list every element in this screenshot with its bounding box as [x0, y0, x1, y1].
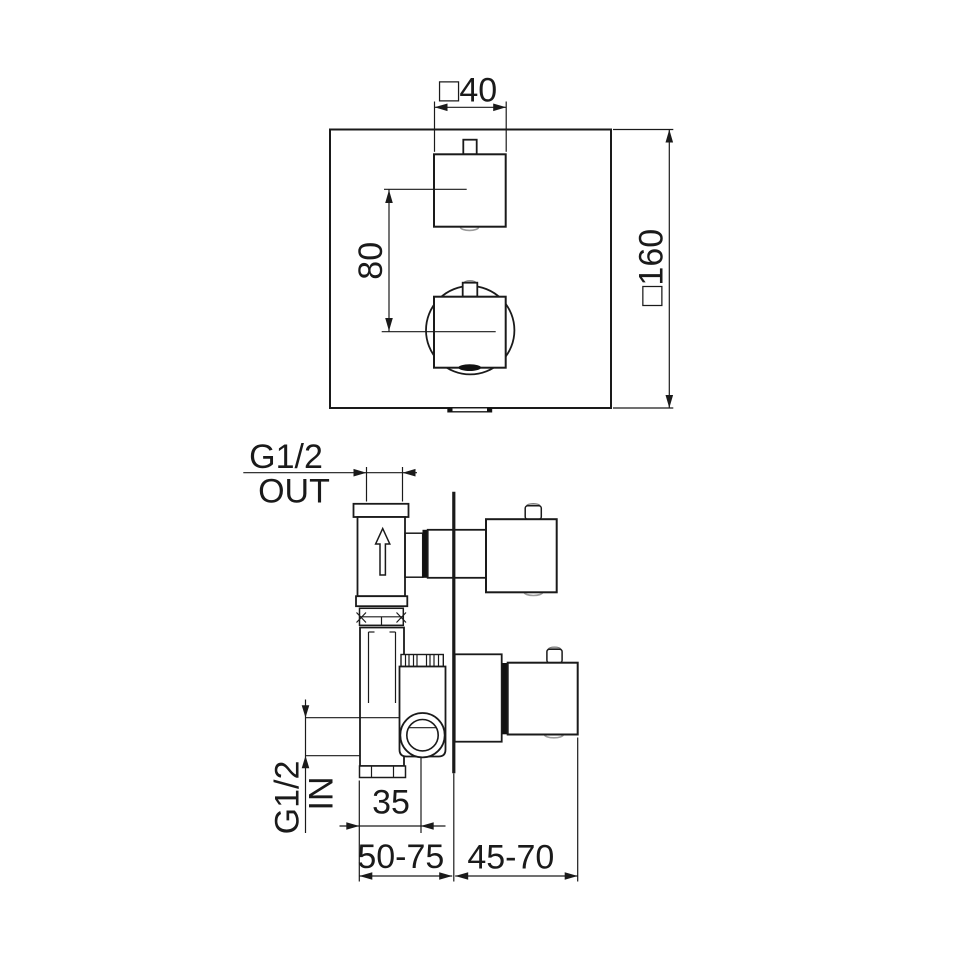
dim-80-label: 80	[352, 242, 390, 280]
lower-handle-escutcheon	[455, 654, 502, 741]
temperature-handle-tab	[463, 283, 478, 297]
side-view: G1/2 OUT	[243, 438, 577, 882]
drawing-canvas: □40 80	[0, 0, 958, 958]
lower-handle-tab	[547, 649, 562, 663]
valve-body-bottom-nut	[360, 766, 406, 778]
threaded-section	[357, 608, 407, 625]
dim-40-label: □40	[439, 72, 497, 110]
outlet-thread-label: G1/2	[249, 438, 323, 476]
inlet-thread-label: G1/2	[269, 761, 307, 835]
dim-50-75-label: 50-75	[357, 838, 444, 876]
upper-handle-connector	[428, 530, 486, 578]
inlet-elbow	[400, 655, 446, 758]
outlet-pipe-flange	[354, 504, 409, 517]
dim-trim-depth: 45-70	[455, 838, 578, 880]
lower-handle-assembly	[455, 647, 578, 742]
outlet-direction-label: OUT	[258, 473, 330, 511]
upper-handle-assembly	[405, 504, 557, 596]
upper-handle-tab	[525, 506, 541, 519]
upper-handle-body	[486, 519, 557, 592]
dim-outlet: G1/2 OUT	[243, 438, 417, 511]
dim-mounting-depth: 50-75	[357, 838, 452, 880]
outlet-pipe	[354, 504, 409, 596]
diverter-handle-tab	[463, 140, 476, 155]
dim-35-label: 35	[372, 784, 410, 822]
dim-plate-size: □160	[613, 130, 673, 409]
valve-body-flange	[356, 596, 407, 606]
upper-handle-neck	[405, 533, 423, 577]
inlet-elbow-knurl	[401, 655, 443, 667]
inlet-direction-label: IN	[303, 777, 341, 811]
diverter-handle	[434, 140, 506, 231]
technical-drawing: □40 80	[0, 0, 958, 958]
dim-45-70-label: 45-70	[467, 838, 554, 876]
temperature-handle	[426, 281, 514, 375]
lower-handle-body	[508, 663, 578, 735]
front-view: □40 80	[330, 72, 673, 412]
temperature-handle-mark	[458, 364, 481, 371]
faceplate-bottom-tab	[448, 408, 492, 412]
dim-160-label: □160	[633, 229, 671, 306]
diverter-handle-body	[434, 154, 506, 226]
valve-body-lower	[360, 628, 404, 767]
